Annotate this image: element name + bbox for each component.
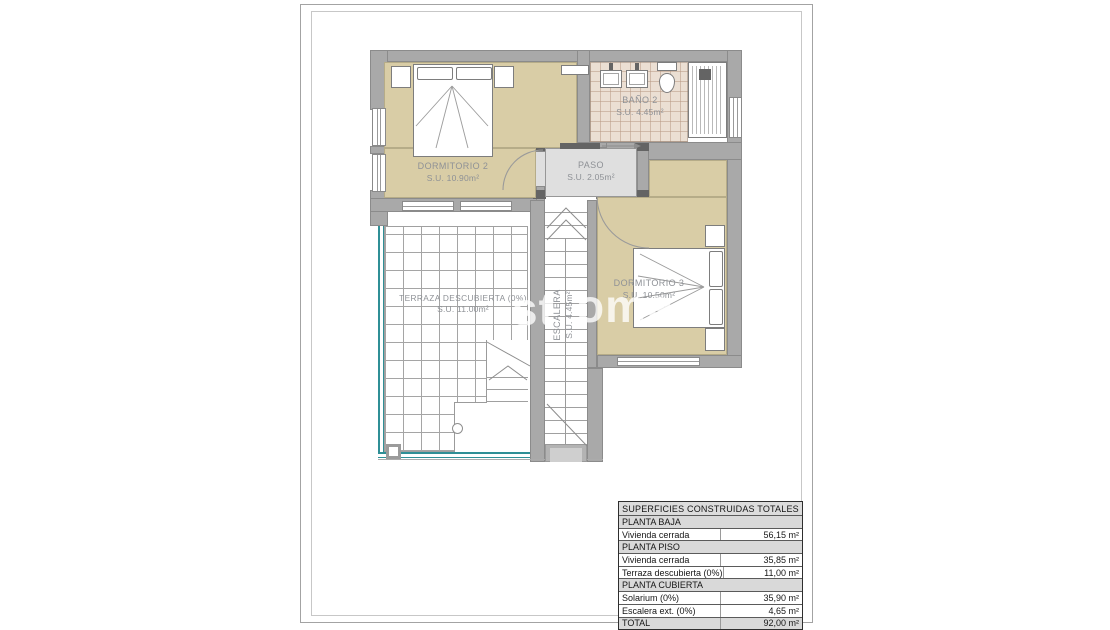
- table-row-label: Escalera ext. (0%): [619, 606, 720, 616]
- table-row-value: 92,00 m²: [720, 618, 802, 630]
- table-row-label: TOTAL: [619, 618, 720, 628]
- door-arc-icon: [503, 150, 543, 190]
- table-row: Solarium (0%)35,90 m²: [619, 591, 802, 604]
- stairs-direction-arrow-icon: [547, 208, 586, 240]
- table-row: Vivienda cerrada56,15 m²: [619, 528, 802, 541]
- table-row-value: 4,65 m²: [720, 605, 802, 617]
- table-row: TOTAL92,00 m²: [619, 617, 802, 630]
- table-row-value: 35,85 m²: [720, 554, 802, 566]
- table-row: Escalera ext. (0%)4,65 m²: [619, 604, 802, 617]
- stairs-direction-arrow-icon: [489, 366, 527, 380]
- table-row-label: Solarium (0%): [619, 593, 720, 603]
- table-row-label: Terraza descubierta (0%): [619, 568, 723, 578]
- stair-break-line: [547, 404, 587, 446]
- table-row-label: PLANTA PISO: [619, 542, 802, 552]
- sliding-door-arrow-icon: [602, 143, 641, 149]
- stair-break-line: [487, 342, 530, 366]
- plan-linework: [0, 0, 1110, 626]
- table-row-label: PLANTA BAJA: [619, 517, 802, 527]
- table-row-value: 11,00 m²: [723, 567, 802, 579]
- table-row-label: Vivienda cerrada: [619, 530, 720, 540]
- table-row-value: 56,15 m²: [720, 529, 802, 541]
- table-title-text: SUPERFICIES CONSTRUIDAS TOTALES: [622, 504, 799, 514]
- table-row: Terraza descubierta (0%)11,00 m²: [619, 566, 802, 579]
- areas-table: SUPERFICIES CONSTRUIDAS TOTALES PLANTA B…: [618, 501, 803, 630]
- table-row-value: 35,90 m²: [720, 592, 802, 604]
- table-row: PLANTA BAJA: [619, 515, 802, 528]
- table-row: PLANTA CUBIERTA: [619, 578, 802, 591]
- floor-plan: DORMITORIO 2 S.U. 10.90m² BAÑO 2 S.U. 4.…: [0, 0, 1110, 626]
- areas-table-title: SUPERFICIES CONSTRUIDAS TOTALES: [619, 502, 802, 515]
- duvet-fold-icon: [416, 86, 488, 148]
- page: { "plan": { "rooms": { "dormitorio2": { …: [0, 0, 1110, 626]
- table-row-label: Vivienda cerrada: [619, 555, 720, 565]
- table-row-label: PLANTA CUBIERTA: [619, 580, 802, 590]
- door-arc-icon: [597, 196, 649, 248]
- duvet-fold-icon: [638, 254, 704, 320]
- table-row: PLANTA PISO: [619, 540, 802, 553]
- table-row: Vivienda cerrada35,85 m²: [619, 553, 802, 566]
- areas-table-rows: PLANTA BAJAVivienda cerrada56,15 m²PLANT…: [619, 515, 802, 629]
